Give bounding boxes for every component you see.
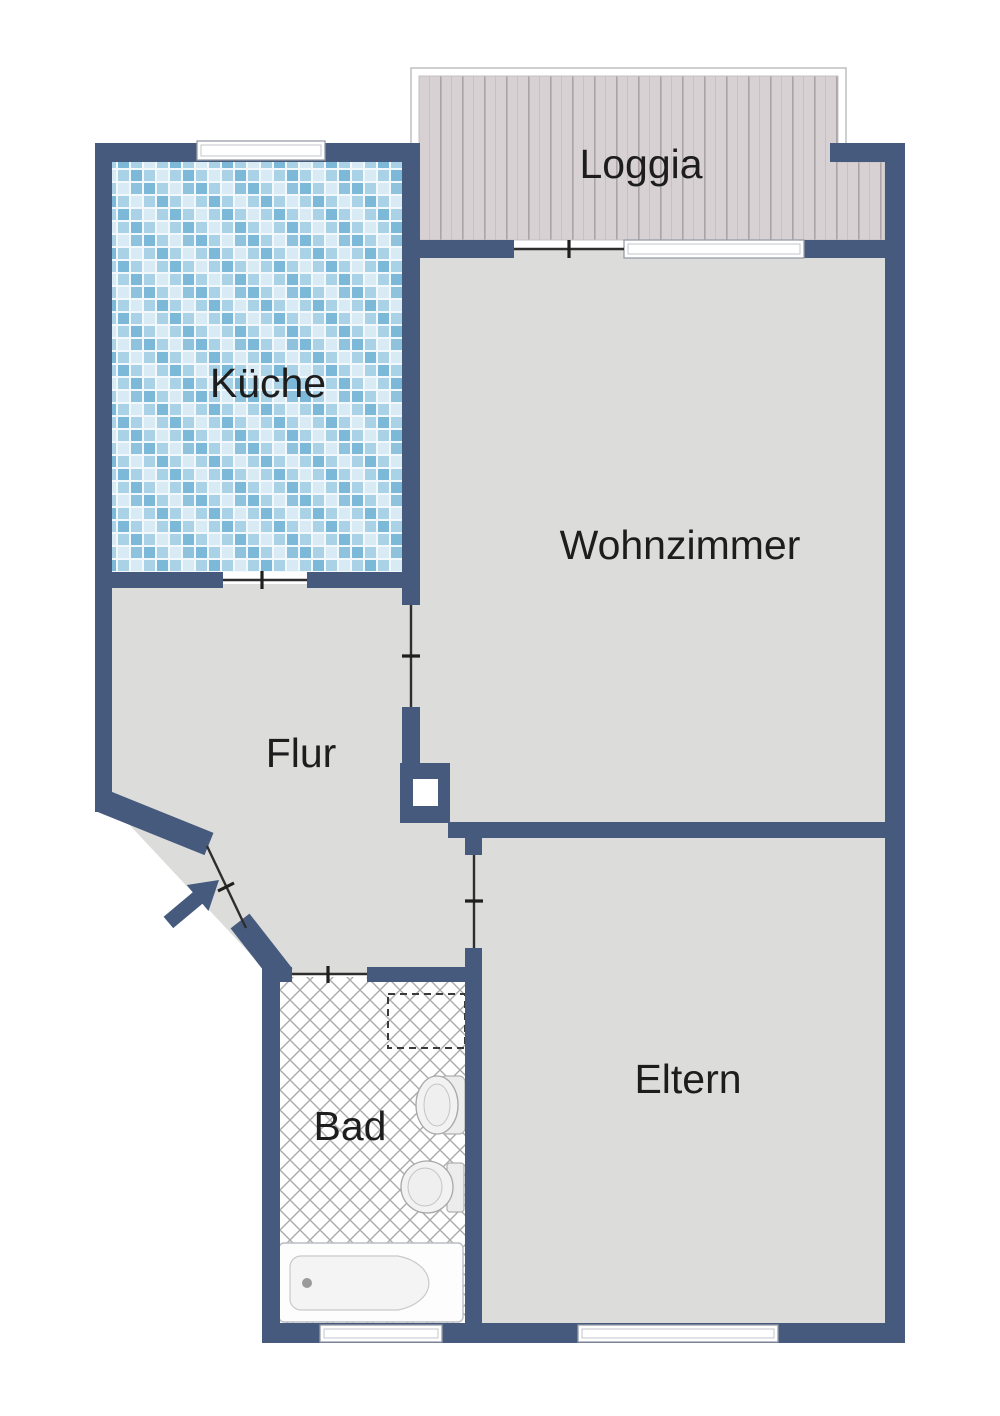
sink [416, 1076, 465, 1134]
room-label-loggia: Loggia [579, 141, 702, 187]
floor-plan-page: Loggia [0, 0, 1000, 1416]
room-label-kueche: Küche [210, 360, 326, 406]
room-label-flur: Flur [266, 730, 337, 776]
window-eltern [578, 1325, 778, 1342]
room-loggia: Loggia [411, 68, 893, 244]
window-wohnzimmer-loggia [624, 240, 804, 258]
bathtub [279, 1243, 463, 1322]
utility-column [400, 763, 450, 823]
room-label-wohnzimmer: Wohnzimmer [560, 522, 801, 568]
bathtub-drain [302, 1278, 312, 1288]
entrance-arrow-icon [164, 880, 219, 928]
window-kueche [197, 141, 325, 160]
room-label-eltern: Eltern [634, 1056, 741, 1102]
toilet [401, 1161, 464, 1213]
floor-plan: Loggia [0, 0, 1000, 1416]
room-label-bad: Bad [314, 1103, 387, 1149]
window-bad [320, 1325, 442, 1342]
